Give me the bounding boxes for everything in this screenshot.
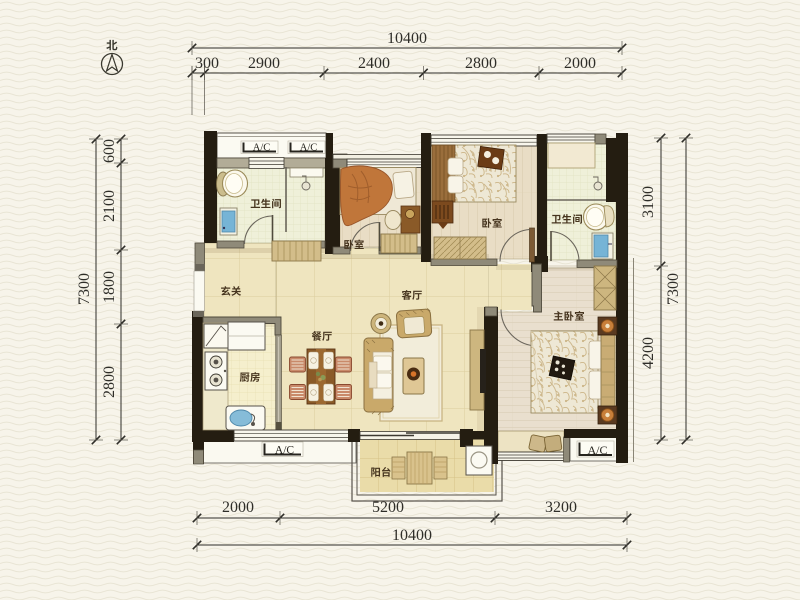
svg-text:A/C: A/C xyxy=(275,445,295,457)
svg-text:2800: 2800 xyxy=(101,366,118,398)
svg-text:300: 300 xyxy=(195,55,219,72)
svg-text:600: 600 xyxy=(101,139,118,163)
svg-text:10400: 10400 xyxy=(392,527,432,544)
svg-text:2000: 2000 xyxy=(222,499,254,516)
svg-text:3200: 3200 xyxy=(545,499,577,516)
svg-text:10400: 10400 xyxy=(387,30,427,47)
svg-text:A/C: A/C xyxy=(253,143,271,154)
svg-text:2900: 2900 xyxy=(248,55,280,72)
svg-text:2800: 2800 xyxy=(465,55,497,72)
svg-text:A/C: A/C xyxy=(587,443,607,457)
svg-text:2000: 2000 xyxy=(564,55,596,72)
svg-text:7300: 7300 xyxy=(76,273,93,305)
svg-text:2100: 2100 xyxy=(101,190,118,222)
svg-text:A/C: A/C xyxy=(300,143,318,154)
svg-text:1800: 1800 xyxy=(101,271,118,303)
svg-text:2400: 2400 xyxy=(358,55,390,72)
svg-text:7300: 7300 xyxy=(665,273,682,305)
svg-text:3100: 3100 xyxy=(640,186,657,218)
svg-text:4200: 4200 xyxy=(640,337,657,369)
